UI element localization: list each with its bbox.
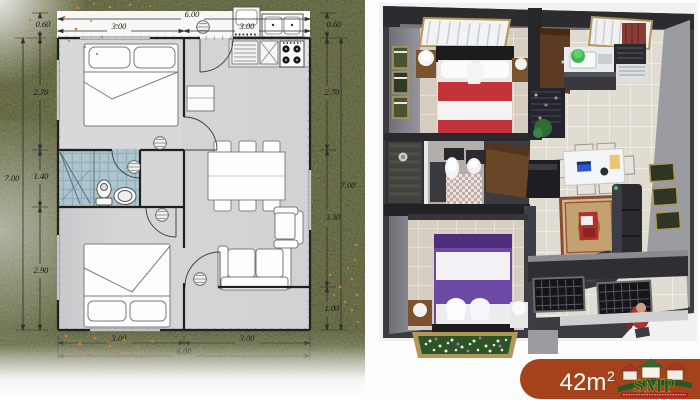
svg-text:2.70: 2.70 (34, 88, 49, 97)
svg-text:2.90: 2.90 (34, 266, 49, 275)
svg-text:1.40: 1.40 (34, 172, 49, 181)
svg-text:7.00: 7.00 (341, 181, 356, 190)
svg-text:6.00: 6.00 (185, 10, 200, 19)
svg-text:2: 2 (607, 368, 615, 384)
svg-text:0.60: 0.60 (327, 20, 342, 29)
svg-text:7.00: 7.00 (5, 174, 20, 183)
svg-text:3.30: 3.30 (325, 213, 341, 222)
svg-text:42m: 42m (560, 369, 607, 396)
svg-text:1.00: 1.00 (325, 304, 340, 313)
svg-text:3.00: 3.00 (239, 22, 255, 31)
svg-text:0.60: 0.60 (36, 20, 51, 29)
svg-text:3.00: 3.00 (111, 22, 127, 31)
svg-text:2.70: 2.70 (325, 88, 340, 97)
